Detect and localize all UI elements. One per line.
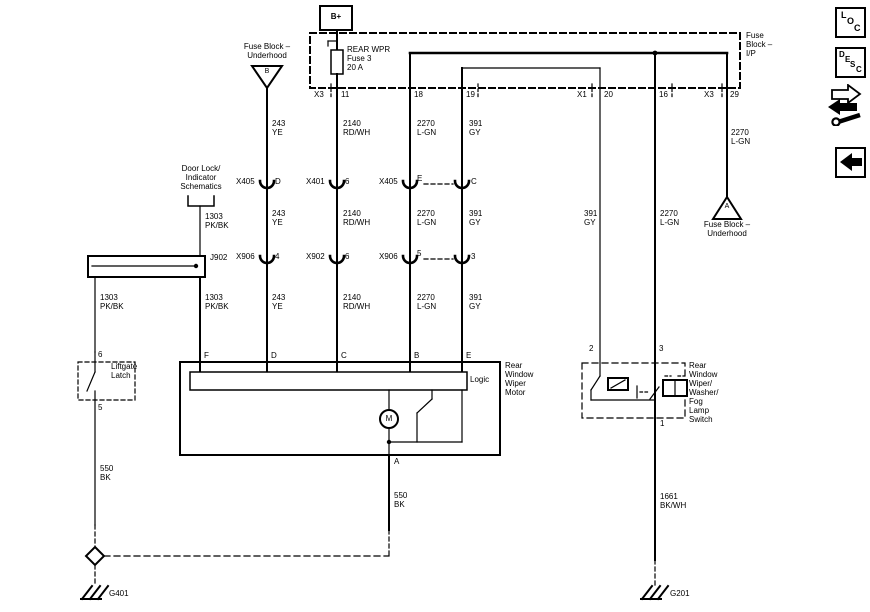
wire-391-color-3: GY — [469, 302, 481, 311]
wire-1303-color-top: PK/BK — [205, 221, 229, 230]
switch-name-2: Window — [689, 370, 717, 379]
switch-name-1: Rear — [689, 361, 706, 370]
conn-x405b-row1: X405 — [379, 177, 398, 186]
wire-391-circuit-2: 391 — [469, 209, 482, 218]
wire-243-circuit-2: 243 — [272, 209, 285, 218]
wire-243-color: YE — [272, 128, 283, 137]
fuse-name: REAR WPR — [347, 45, 390, 54]
conn-pin-c: C — [471, 177, 477, 186]
fuse-block-ip-name-1: Fuse — [746, 31, 764, 40]
fuse-symbol — [331, 50, 343, 74]
fuse-block-ip-bus — [410, 51, 727, 400]
ground-g201-symbol — [641, 586, 668, 599]
motor-pin-e: E — [466, 351, 471, 360]
battery-label: B+ — [331, 12, 341, 21]
switch-pin-2: 2 — [589, 344, 593, 353]
desc-letter-1: D — [839, 51, 845, 59]
fuse-block-ip-name-3: I/P — [746, 49, 756, 58]
wire-391-color-2: GY — [469, 218, 481, 227]
wire-2140-color-2: RD/WH — [343, 218, 370, 227]
fuse-block-ip-name-2: Block – — [746, 40, 772, 49]
switch-name-6: Lamp — [689, 406, 709, 415]
conn-x906-pin-4: 4 — [275, 252, 279, 261]
underhood-b-id: B — [265, 68, 270, 76]
arrows-wrench-icon — [826, 84, 870, 126]
connector-row2-symbols — [260, 256, 469, 263]
conn-x405-row1: X405 — [236, 177, 255, 186]
wire-550-color-r: BK — [394, 500, 405, 509]
wire-243-circuit-3: 243 — [272, 293, 285, 302]
door-lock-ref-1[interactable]: Door Lock/ — [182, 164, 221, 173]
wire-2270-circuit-2: 2270 — [417, 209, 435, 218]
compare-schematic-button[interactable] — [826, 84, 870, 126]
conn-x906-pin-5: 5 — [417, 249, 421, 258]
wire-1303-color-l: PK/BK — [100, 302, 124, 311]
fuse-block-ip-box — [310, 33, 740, 98]
back-arrow-icon — [837, 149, 864, 176]
switch-name-3: Wiper/ — [689, 379, 712, 388]
motor-pin-f: F — [204, 351, 209, 360]
wire-2270-circuit-3: 2270 — [417, 293, 435, 302]
wire-2270-color-2: L-GN — [417, 218, 436, 227]
switch-pin-1: 1 — [660, 419, 664, 428]
pin-11: 11 — [341, 90, 349, 99]
conn-x906b-row2: X906 — [379, 252, 398, 261]
ground-runs — [81, 525, 668, 599]
wire-391-color: GY — [469, 128, 481, 137]
wire-243-color-3: YE — [272, 302, 283, 311]
splice-diamond — [86, 547, 104, 565]
conn-x401: X401 — [306, 177, 325, 186]
switch-pin-3: 3 — [659, 344, 663, 353]
wire-550-color-l: BK — [100, 473, 111, 482]
wire-2140-color: RD/WH — [343, 128, 370, 137]
latch-name-1: Liftgate — [111, 362, 137, 371]
fuse-id: Fuse 3 — [347, 54, 371, 63]
wire-391-circuit: 391 — [469, 119, 482, 128]
ground-g401-symbol — [81, 586, 108, 599]
conn-x401-pin-6: 6 — [345, 177, 349, 186]
pin-19: 19 — [466, 90, 475, 99]
motor-pin-b: B — [414, 351, 419, 360]
underhood-b-name-1[interactable]: Fuse Block – — [244, 42, 290, 51]
motor-name-1: Rear — [505, 361, 522, 370]
connector-row1-symbols — [260, 181, 469, 188]
wire-1661-circuit: 1661 — [660, 492, 678, 501]
wire-1303-circuit-l: 1303 — [100, 293, 118, 302]
desc-letter-4: C — [856, 66, 862, 74]
wire-2140-color-3: RD/WH — [343, 302, 370, 311]
fuse-rating: 20 A — [347, 63, 363, 72]
wiper-motor-symbol — [180, 362, 500, 530]
pin-20: 20 — [604, 90, 613, 99]
motor-logic-label: Logic — [470, 375, 489, 384]
wire-2270-circuit-far: 2270 — [731, 128, 749, 137]
conn-x3-left: X3 — [314, 90, 324, 99]
underhood-a-name-1[interactable]: Fuse Block – — [704, 220, 750, 229]
wire-2270-circuit-r: 2270 — [660, 209, 678, 218]
wire-2140-circuit-3: 2140 — [343, 293, 361, 302]
conn-x3-right: X3 — [704, 90, 714, 99]
wire-243-circuit: 243 — [272, 119, 285, 128]
wire-1661-color: BK/WH — [660, 501, 686, 510]
wire-1303-circuit-top: 1303 — [205, 212, 223, 221]
underhood-b-name-2[interactable]: Underhood — [247, 51, 287, 60]
conn-x902: X902 — [306, 252, 325, 261]
loc-letter-3: C — [854, 24, 861, 33]
conn-x405-pin-e: E — [417, 174, 422, 183]
wire-2270-color: L-GN — [417, 128, 436, 137]
conn-x405-pin-d: D — [275, 177, 281, 186]
desc-button[interactable]: D E S C — [835, 47, 866, 78]
desc-letter-3: S — [850, 61, 855, 69]
splice-j902-label: J902 — [210, 253, 227, 262]
motor-m-symbol: M — [386, 414, 393, 423]
switch-name-4: Washer/ — [689, 388, 719, 397]
loc-letter-1: L — [841, 11, 847, 20]
motor-name-4: Motor — [505, 388, 525, 397]
wire-2270-color-3: L-GN — [417, 302, 436, 311]
wire-2270-color-far: L-GN — [731, 137, 750, 146]
conn-x902-pin-6: 6 — [345, 252, 349, 261]
door-lock-ref-2[interactable]: Indicator — [186, 173, 217, 182]
wire-550-circuit-l: 550 — [100, 464, 113, 473]
conn-x1: X1 — [577, 90, 587, 99]
latch-pin-5: 5 — [98, 403, 102, 412]
switch-name-5: Fog — [689, 397, 703, 406]
wire-391-color-r: GY — [584, 218, 596, 227]
wiring-diagram-page: B+ REAR WPR Fuse 3 20 A Fuse Block – I/P… — [0, 0, 870, 612]
wire-2270-color-r: L-GN — [660, 218, 679, 227]
back-button[interactable] — [835, 147, 866, 178]
motor-pin-c: C — [341, 351, 347, 360]
motor-pin-a: A — [394, 457, 399, 466]
splice-j902-symbol — [88, 256, 205, 372]
latch-name-2: Latch — [111, 371, 131, 380]
latch-pin-6: 6 — [98, 350, 102, 359]
wire-391-circuit-r: 391 — [584, 209, 597, 218]
wire-2140-circuit: 2140 — [343, 119, 361, 128]
ground-g201-label: G201 — [670, 589, 690, 598]
conn-x906-row2: X906 — [236, 252, 255, 261]
wire-1303-circuit-r: 1303 — [205, 293, 223, 302]
wiper-washer-switch-symbol — [582, 363, 687, 560]
motor-name-3: Wiper — [505, 379, 526, 388]
switch-name-7: Switch — [689, 415, 713, 424]
pin-29: 29 — [730, 90, 739, 99]
wire-391-circuit-3: 391 — [469, 293, 482, 302]
pin-16: 16 — [659, 90, 668, 99]
loc-button[interactable]: L O C — [835, 7, 866, 38]
wire-243-color-2: YE — [272, 218, 283, 227]
wire-2270-circuit: 2270 — [417, 119, 435, 128]
conn-pin-3: 3 — [471, 252, 475, 261]
underhood-a-name-2[interactable]: Underhood — [707, 229, 747, 238]
door-lock-ref-3[interactable]: Schematics — [180, 182, 221, 191]
wire-550-circuit-r: 550 — [394, 491, 407, 500]
ground-g401-label: G401 — [109, 589, 129, 598]
underhood-a-id: A — [725, 203, 730, 211]
motor-name-2: Window — [505, 370, 533, 379]
motor-pin-d: D — [271, 351, 277, 360]
wire-2140-circuit-2: 2140 — [343, 209, 361, 218]
loc-letter-2: O — [847, 17, 854, 26]
pin-18: 18 — [414, 90, 423, 99]
wire-1303-color-r: PK/BK — [205, 302, 229, 311]
